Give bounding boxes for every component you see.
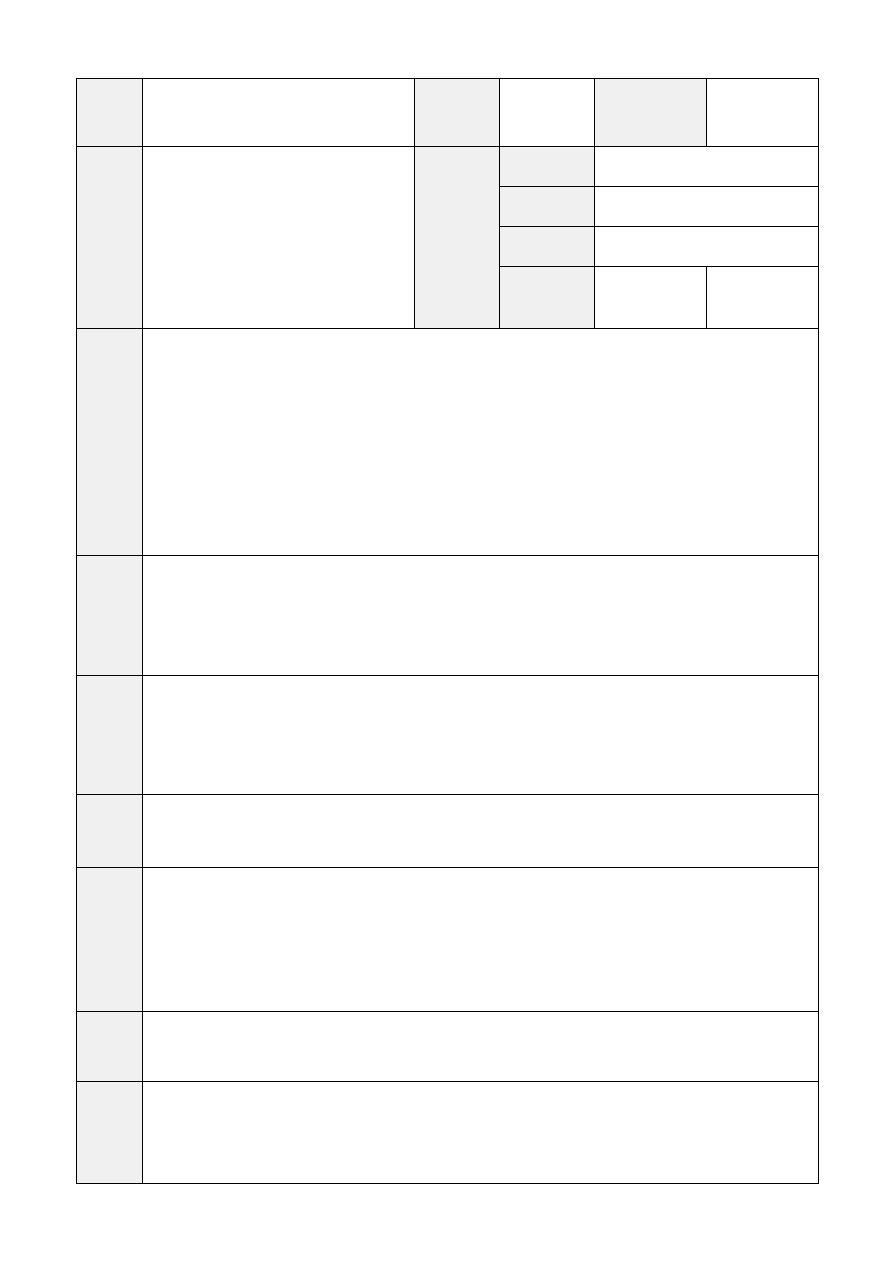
table-row: [77, 795, 819, 868]
table-row: [77, 676, 819, 795]
form-table-container: [76, 78, 819, 1184]
table-row: [77, 147, 819, 187]
label-cell-r2-c: [415, 147, 500, 329]
form-table: [76, 78, 819, 1184]
table-row: [77, 79, 819, 147]
field-cell-r2-sub2[interactable]: [595, 187, 819, 227]
label-cell-r3: [77, 329, 143, 556]
field-cell-r9[interactable]: [143, 1082, 819, 1184]
label-cell-r2-sub3: [500, 227, 595, 267]
field-cell-r2-sub4-left[interactable]: [595, 267, 707, 329]
field-cell-r3[interactable]: [143, 329, 819, 556]
table-row: [77, 868, 819, 1012]
field-cell-r2-sub4-right[interactable]: [707, 267, 819, 329]
label-cell-r2-sub4: [500, 267, 595, 329]
label-cell-r2-sub1: [500, 147, 595, 187]
label-cell-r1-c: [415, 79, 500, 147]
field-cell-r2-b[interactable]: [143, 147, 415, 329]
label-cell-r8: [77, 1012, 143, 1082]
field-cell-r6[interactable]: [143, 795, 819, 868]
table-row: [77, 1012, 819, 1082]
field-cell-r5[interactable]: [143, 676, 819, 795]
label-cell-r2-a: [77, 147, 143, 329]
label-cell-r9: [77, 1082, 143, 1184]
label-cell-r6: [77, 795, 143, 868]
field-cell-r1-d[interactable]: [500, 79, 595, 147]
field-cell-r1-f[interactable]: [707, 79, 819, 147]
label-cell-r2-sub2: [500, 187, 595, 227]
label-cell-r7: [77, 868, 143, 1012]
table-row: [77, 329, 819, 556]
label-cell-r1-e: [595, 79, 707, 147]
field-cell-r2-sub1[interactable]: [595, 147, 819, 187]
field-cell-r7[interactable]: [143, 868, 819, 1012]
field-cell-r2-sub3[interactable]: [595, 227, 819, 267]
table-row: [77, 1082, 819, 1184]
label-cell-r4: [77, 556, 143, 676]
field-cell-r8[interactable]: [143, 1012, 819, 1082]
table-row: [77, 556, 819, 676]
label-cell-r5: [77, 676, 143, 795]
document-page: [0, 0, 893, 1262]
label-cell-r1-a: [77, 79, 143, 147]
field-cell-r4[interactable]: [143, 556, 819, 676]
field-cell-r1-b[interactable]: [143, 79, 415, 147]
